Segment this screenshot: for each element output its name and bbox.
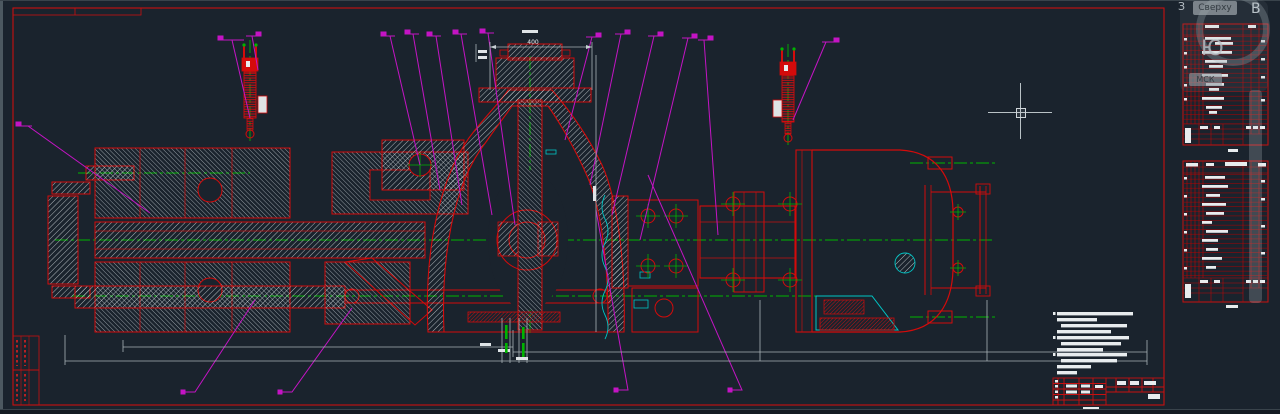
cad-canvas[interactable]: 400 [0,0,1280,414]
breather-valve [773,47,796,142]
window-edge-left [0,0,3,414]
dim-top-value: 400 [527,39,539,46]
viewcube-west-label[interactable]: З [1178,0,1185,13]
window-edge-top [0,0,1280,1]
window-edge-bottom [0,409,1280,414]
viewcube-south-label[interactable]: Ю [1201,36,1224,60]
viewcube-face-top[interactable]: Сверху [1193,1,1237,15]
viewcube-east-label[interactable]: В [1251,1,1261,17]
model-space: 400 [0,0,1280,414]
viewcube-ucs-button[interactable]: МСК [1189,73,1222,86]
breather-valve [242,43,267,138]
title-block [1053,378,1164,411]
axle-assembly [48,43,990,339]
tech-requirements-text [1053,312,1133,374]
scrollbar-thumb[interactable] [1249,90,1262,303]
